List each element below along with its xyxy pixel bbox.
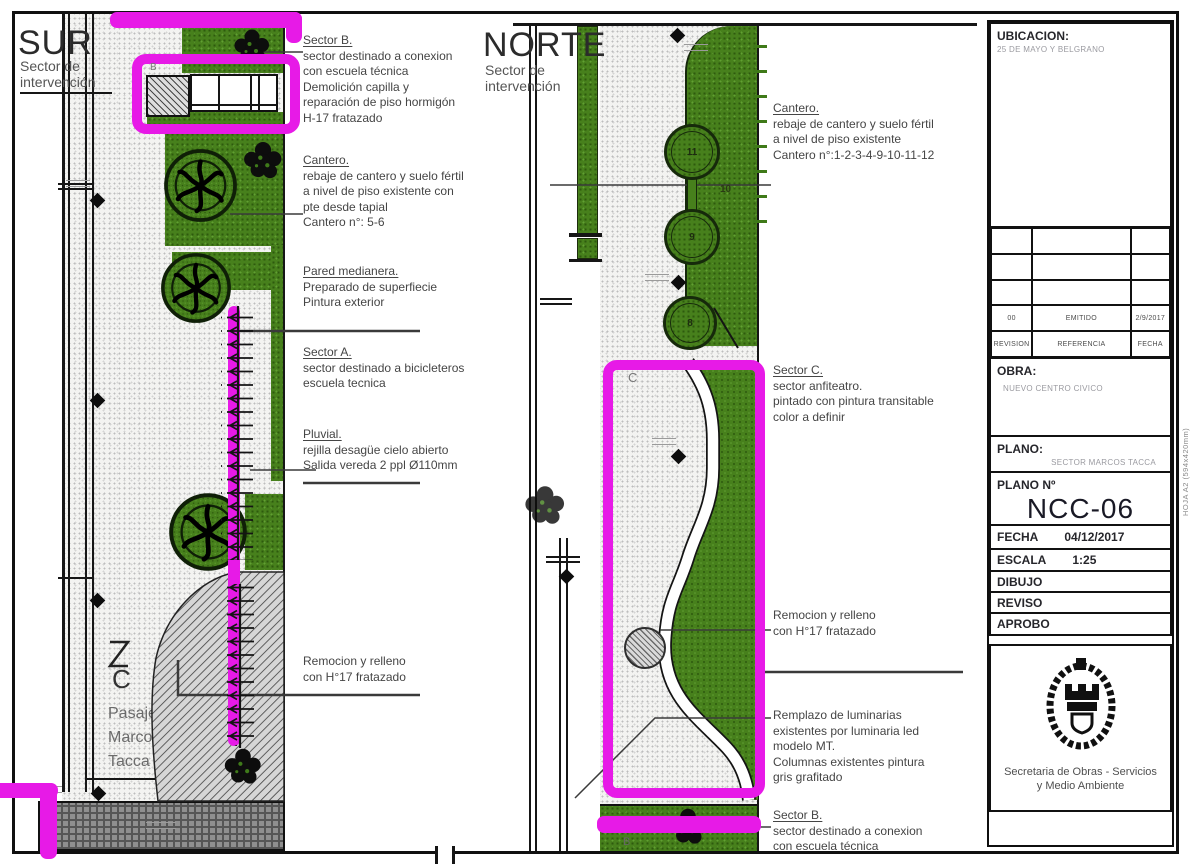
drawing-sheet: 11 9 8 10 <box>0 0 1200 864</box>
tree-leafy-icon <box>525 486 564 524</box>
rev-cell <box>1131 228 1170 254</box>
escala-row: ESCALA 1:25 <box>989 548 1172 572</box>
tiny-label-icon <box>684 44 708 51</box>
escala-value: 1:25 <box>1072 553 1096 567</box>
sur-green-bed <box>165 132 284 246</box>
norte-title: NORTE <box>483 26 606 65</box>
tiny-label-icon <box>146 822 176 829</box>
rev-cell <box>991 254 1032 280</box>
rev-number: 00 <box>991 305 1032 331</box>
plano-value: SECTOR MARCOS TACCA <box>991 456 1170 469</box>
fecha-value: 04/12/2017 <box>1064 530 1124 544</box>
aprobo-label: APROBO <box>997 617 1050 631</box>
rev-cell <box>991 228 1032 254</box>
rev-cell <box>1131 254 1170 280</box>
annotation-sector-b: Sector B. sector destinado a conexion co… <box>303 33 478 126</box>
highlight-sector-b-box <box>132 54 300 134</box>
annotation-sector-c: Sector C. sector anfiteatro. pintado con… <box>773 363 973 425</box>
annotation-cantero: Cantero. rebaje de cantero y suelo férti… <box>303 153 478 231</box>
highlight-sector-c-box <box>603 360 765 798</box>
reviso-row: REVISO <box>989 591 1172 614</box>
rev-date: 2/9/2017 <box>1131 305 1170 331</box>
fecha-label: FECHA <box>997 530 1038 544</box>
sur-green-bed <box>238 688 284 792</box>
sur-green-bed <box>245 494 284 570</box>
obra-box: OBRA: NUEVO CENTRO CIVICO <box>989 357 1172 437</box>
luminaria-icon <box>559 569 575 585</box>
label-b: B <box>150 62 157 73</box>
fecha-row: FECHA 04/12/2017 <box>989 524 1172 550</box>
cantero-number-10: 10 <box>720 184 731 195</box>
obra-value: NUEVO CENTRO CIVICO <box>991 378 1170 395</box>
rev-header-revision: REVISION <box>991 331 1032 357</box>
dibujo-row: DIBUJO <box>989 570 1172 593</box>
rev-cell <box>1131 280 1170 306</box>
green-tick-icon <box>753 95 767 98</box>
green-tick-icon <box>753 195 767 198</box>
tiny-label-icon <box>66 180 90 187</box>
ubicacion-box: UBICACION: 25 DE MAYO Y BELGRANO <box>989 22 1172 228</box>
annotation-cantero-norte: Cantero. rebaje de cantero y suelo férti… <box>773 101 973 163</box>
rev-cell <box>1032 254 1130 280</box>
tick-line <box>546 556 580 558</box>
ubicacion-label: UBICACION: <box>991 24 1170 43</box>
escala-label: ESCALA <box>997 553 1046 567</box>
wall-line <box>529 24 531 854</box>
wall-line <box>535 24 537 854</box>
annotation-luminarias: Remplazo de luminarias existentes por lu… <box>773 708 973 786</box>
annotation-sector-b-norte: Sector B. sector destinado a conexion co… <box>773 808 973 855</box>
municipal-crest-icon <box>1039 656 1123 752</box>
title-block: UBICACION: 25 DE MAYO Y BELGRANO 00 EMIT… <box>987 20 1174 847</box>
tiny-label-icon <box>645 274 669 281</box>
cantero-ring <box>670 303 710 343</box>
annotation-pluvial: Pluvial. rejilla desagüe cielo abierto S… <box>303 427 478 474</box>
annotation-sector-a: Sector A. sector destinado a bicicletero… <box>303 345 478 392</box>
sheet-size-label: HOJA A2 (594x420mm) <box>1181 354 1190 516</box>
wall-line <box>68 11 70 792</box>
plano-label: PLANO: <box>991 437 1170 456</box>
divider-line <box>569 233 602 237</box>
rev-cell <box>991 280 1032 306</box>
highlight-sector-a-stroke <box>228 306 240 746</box>
label-c-norte: C <box>628 370 637 385</box>
annotation-remocion-norte: Remocion y relleno con H°17 fratazado <box>773 608 973 639</box>
green-tick-icon <box>753 170 767 173</box>
annotation-pared-medianera: Pared medianera. Preparado de superfieci… <box>303 264 478 311</box>
plano-box: PLANO: SECTOR MARCOS TACCA <box>989 435 1172 473</box>
label-c: C <box>112 664 131 695</box>
highlight-sector-b-hook <box>286 12 302 43</box>
highlight-sector-b-bottom-bar <box>597 816 761 833</box>
plano-n-box: PLANO Nº NCC-06 <box>989 471 1172 526</box>
highlight-corner-vertical <box>40 783 57 859</box>
pole-line <box>559 538 561 854</box>
norte-left-cantero <box>577 238 598 259</box>
rev-header-referencia: REFERENCIA <box>1032 331 1130 357</box>
sur-green-bed <box>172 252 284 290</box>
green-tick-icon <box>753 145 767 148</box>
aprobo-row: APROBO <box>989 612 1172 636</box>
cantero-ring <box>671 131 713 173</box>
rev-reference: EMITIDO <box>1032 305 1130 331</box>
green-tick-icon <box>753 220 767 223</box>
subtitle-underline <box>20 92 112 94</box>
green-tick-icon <box>753 70 767 73</box>
label-b-norte: B <box>623 836 630 848</box>
tick-line <box>540 303 572 305</box>
cantero-circle-11: 11 <box>664 124 720 180</box>
sur-subtitle: Sector de intervención <box>20 58 96 90</box>
wall-line <box>62 11 65 792</box>
green-tick-icon <box>753 45 767 48</box>
green-tick-icon <box>753 120 767 123</box>
revision-table: 00 EMITIDO 2/9/2017 REVISION REFERENCIA … <box>989 226 1172 359</box>
wall-line <box>85 11 87 792</box>
ubicacion-value: 25 DE MAYO Y BELGRANO <box>991 43 1170 56</box>
tick-line <box>58 577 92 579</box>
plano-n-label: PLANO Nº <box>991 473 1170 492</box>
cantero-circle-8: 8 <box>663 296 717 350</box>
tick-line <box>540 298 572 300</box>
logo-box: Secretaria de Obras - Servicios y Medio … <box>989 644 1172 812</box>
reviso-label: REVISO <box>997 596 1042 610</box>
divider-line <box>569 259 602 262</box>
highlight-sector-b-top-bar <box>110 12 302 28</box>
frame-gap-line <box>435 846 438 864</box>
secretaria-text: Secretaria de Obras - Servicios y Medio … <box>991 765 1170 793</box>
plano-number: NCC-06 <box>991 493 1170 525</box>
frame-gap-line <box>452 846 455 864</box>
annotation-remocion: Remocion y relleno con H°17 fratazado <box>303 654 478 685</box>
cantero-ring <box>671 216 713 258</box>
street-name: Pasaje Marcos Tacca <box>108 702 160 774</box>
rev-cell <box>1032 280 1130 306</box>
norte-subtitle: Sector de intervención <box>485 62 561 94</box>
rev-header-fecha: FECHA <box>1131 331 1170 357</box>
pole-line <box>566 538 568 854</box>
rev-cell <box>1032 228 1130 254</box>
tick-line <box>546 561 580 563</box>
tick-line <box>58 188 92 190</box>
curb-line <box>85 778 284 780</box>
cantero-circle-9: 9 <box>664 209 720 265</box>
cantero-stem <box>687 178 697 212</box>
obra-label: OBRA: <box>991 359 1170 378</box>
dibujo-label: DIBUJO <box>997 575 1042 589</box>
